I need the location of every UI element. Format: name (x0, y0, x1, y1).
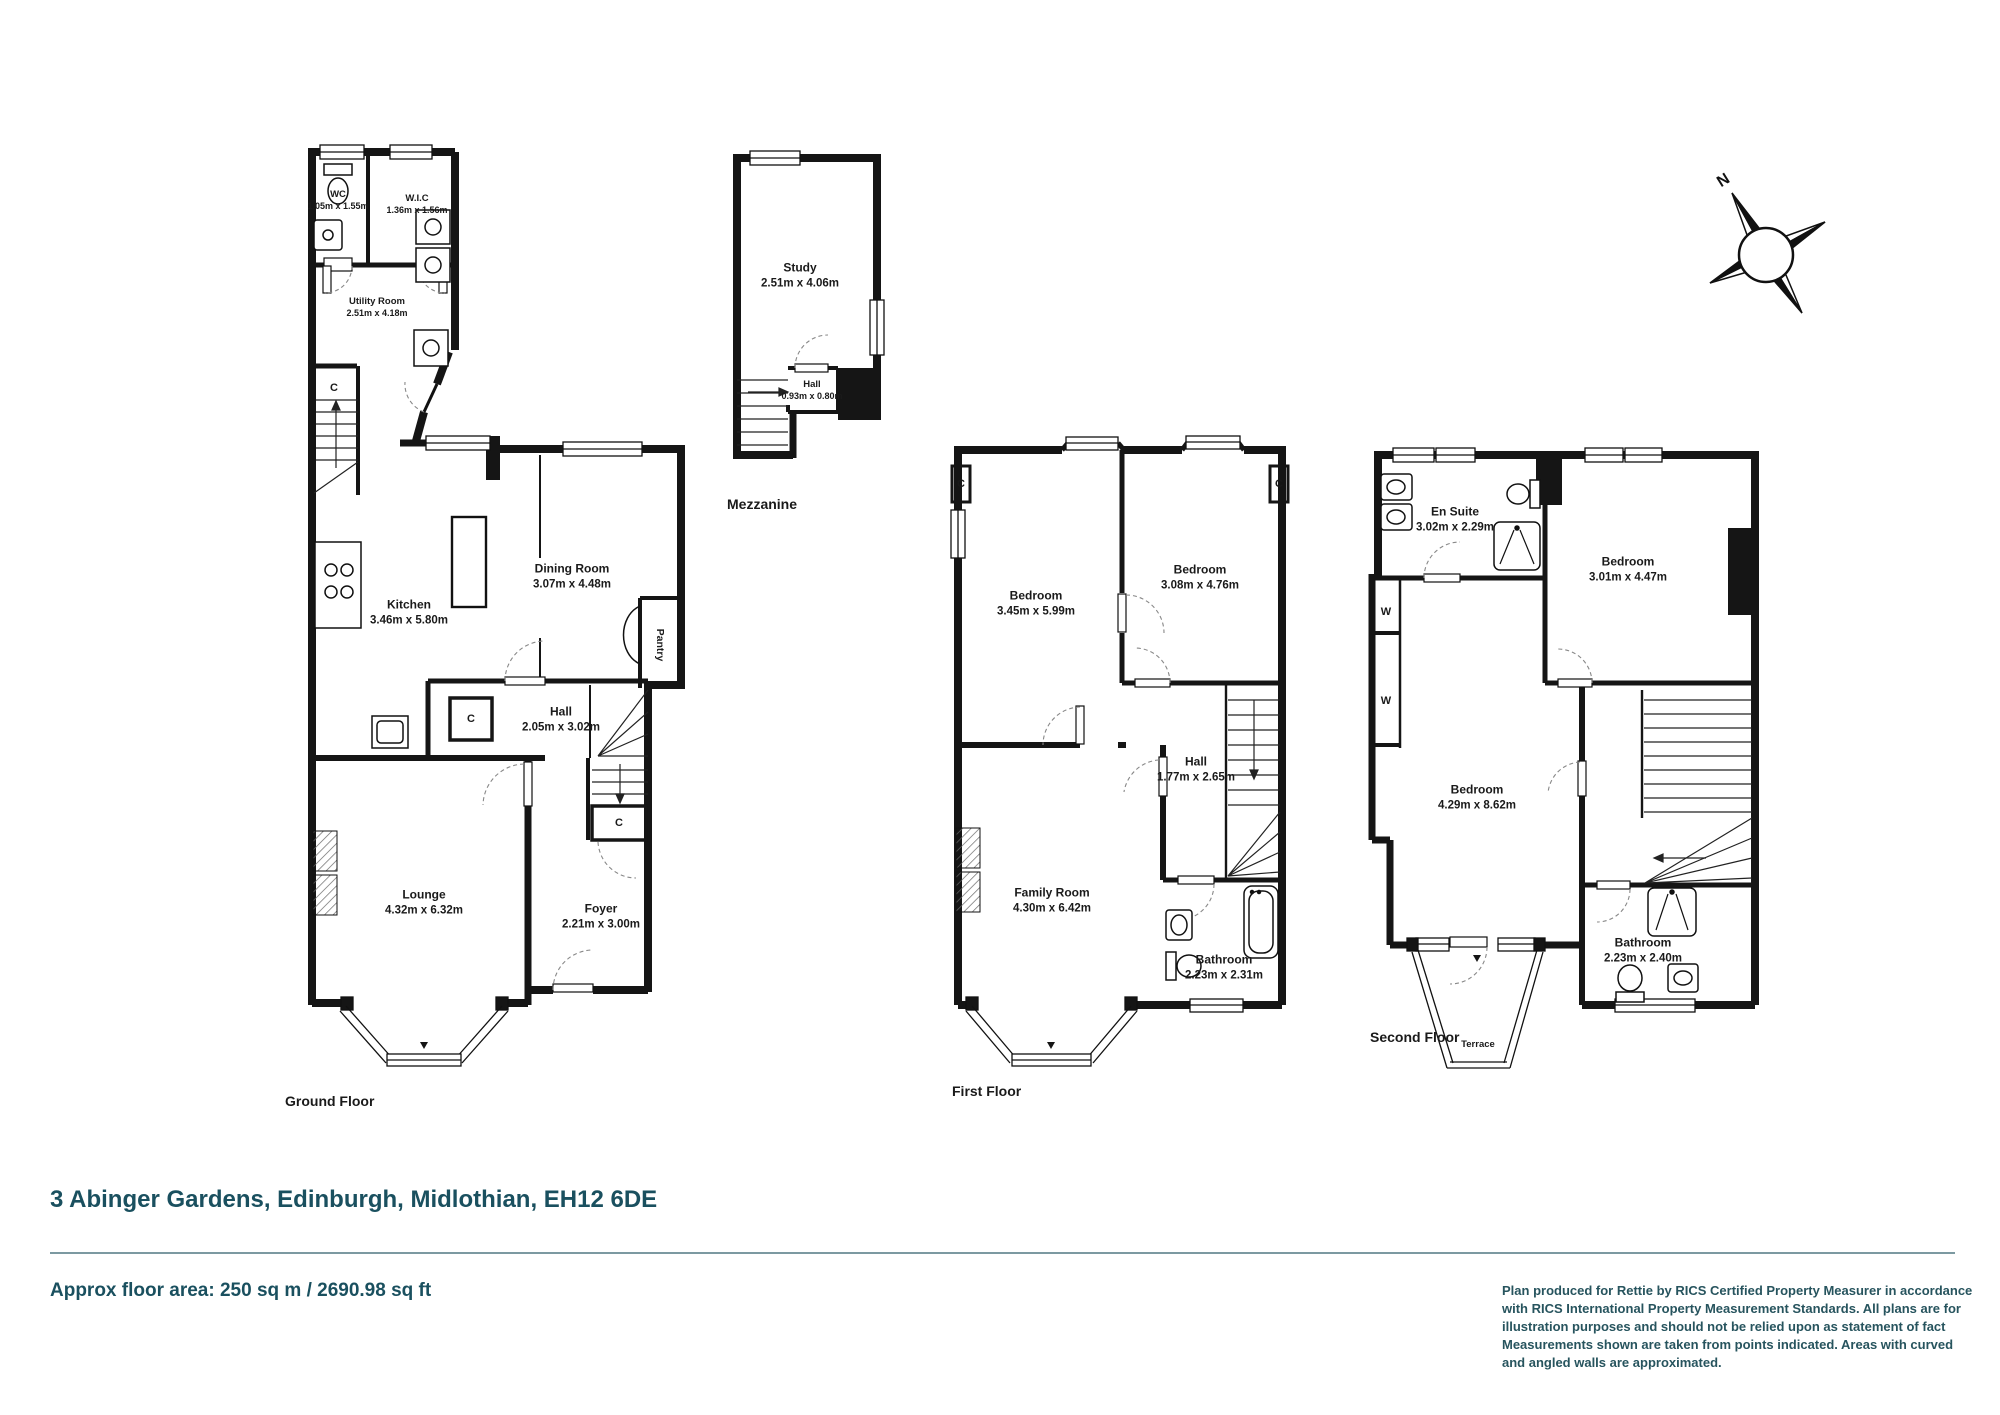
mezzanine-windows (750, 151, 884, 355)
room-name: Bathroom (1196, 953, 1253, 967)
floor-title-first: First Floor (952, 1083, 1021, 1099)
room-name: Bedroom (1174, 563, 1227, 577)
room-name: Lounge (402, 888, 445, 902)
room-label-pantry: Pantry (654, 629, 666, 662)
first-floor-walls (952, 442, 1288, 1005)
ground-floor-fixtures (313, 164, 486, 915)
room-name: Hall (803, 379, 820, 390)
cupboard-label: C (1275, 478, 1283, 490)
footer-divider (50, 1252, 1955, 1254)
room-label-wc: WC 1.05m x 1.55m (307, 189, 368, 213)
room-label-lounge: Lounge 4.32m x 6.32m (385, 888, 463, 919)
floor-title-ground: Ground Floor (285, 1093, 374, 1109)
room-name: Utility Room (349, 296, 405, 307)
room-label-sf-bedroom1: Bedroom 3.01m x 4.47m (1589, 555, 1667, 586)
mezzanine-doors (795, 364, 828, 372)
room-name: Hall (1185, 755, 1207, 769)
room-name: Bedroom (1451, 783, 1504, 797)
room-label-ff-bedroom1: Bedroom 3.45m x 5.99m (997, 589, 1075, 620)
room-dims: 3.02m x 2.29m (1416, 520, 1494, 535)
room-dims: 4.29m x 8.62m (1438, 798, 1516, 813)
cupboard-label: C (957, 478, 965, 490)
room-label-study: Study 2.51m x 4.06m (761, 261, 839, 292)
room-dims: 2.23m x 2.40m (1604, 951, 1682, 966)
room-dims: 2.51m x 4.18m (346, 308, 407, 320)
cupboard-label: C (330, 382, 338, 394)
room-name: Bedroom (1010, 589, 1063, 603)
room-label-terrace: Terrace (1461, 1039, 1495, 1051)
room-label-wic: W.I.C 1.36m x 1.56m (386, 193, 447, 217)
room-label-ff-bathroom: Bathroom 2.23m x 2.31m (1185, 953, 1263, 984)
room-dims: 1.36m x 1.56m (386, 205, 447, 217)
room-label-ff-hall: Hall 1.77m x 2.65m (1157, 755, 1235, 786)
room-name: Dining Room (535, 562, 610, 576)
room-dims: 2.21m x 3.00m (562, 917, 640, 932)
room-label-sf-bedroom2: Bedroom 4.29m x 8.62m (1438, 783, 1516, 814)
room-label-sf-bathroom: Bathroom 2.23m x 2.40m (1604, 936, 1682, 967)
second-floor-doors (1424, 574, 1630, 947)
floor-title-mezzanine: Mezzanine (727, 496, 797, 512)
room-dims: 2.51m x 4.06m (761, 276, 839, 291)
floor-title-second: Second Floor (1370, 1029, 1459, 1045)
room-dims: 3.45m x 5.99m (997, 604, 1075, 619)
disclaimer-text: Plan produced for Rettie by RICS Certifi… (1502, 1282, 1974, 1372)
room-dims: 2.05m x 3.02m (522, 720, 600, 735)
room-label-ensuite: En Suite 3.02m x 2.29m (1416, 505, 1494, 536)
room-name: Hall (550, 705, 572, 719)
first-floor-stairs (1228, 700, 1280, 876)
mezzanine-stairs (737, 380, 788, 445)
cupboard-label: C (467, 713, 475, 725)
floorplan-page: WC 1.05m x 1.55m W.I.C 1.36m x 1.56m Uti… (0, 0, 2000, 1415)
cupboard-label: C (615, 817, 623, 829)
floor-area-text: Approx floor area: 250 sq m / 2690.98 sq… (50, 1280, 431, 1302)
wardrobe-label: W (1381, 695, 1391, 707)
room-label-mezz-hall: Hall 0.93m x 0.80m (781, 379, 842, 403)
room-name: W.I.C (405, 193, 428, 204)
room-name: Terrace (1461, 1039, 1495, 1050)
room-dims: 3.07m x 4.48m (533, 577, 611, 592)
first-floor-doors (1076, 594, 1214, 884)
second-floor-fixtures (1381, 474, 1698, 1002)
room-dims: 1.77m x 2.65m (1157, 770, 1235, 785)
room-label-kitchen: Kitchen 3.46m x 5.80m (370, 598, 448, 629)
room-name: Study (783, 261, 816, 275)
room-name: Bedroom (1602, 555, 1655, 569)
room-label-family-room: Family Room 4.30m x 6.42m (1013, 886, 1091, 917)
room-label-utility: Utility Room 2.51m x 4.18m (346, 296, 407, 320)
room-name: Kitchen (387, 598, 431, 612)
room-name: Family Room (1014, 886, 1089, 900)
room-name: Bathroom (1615, 936, 1672, 950)
second-floor-stairs (1644, 700, 1752, 883)
room-name: Foyer (585, 902, 618, 916)
room-name: En Suite (1431, 505, 1479, 519)
room-label-foyer: Foyer 2.21m x 3.00m (562, 902, 640, 933)
room-label-ff-bedroom2: Bedroom 3.08m x 4.76m (1161, 563, 1239, 594)
room-name: WC (330, 189, 346, 200)
room-dims: 4.32m x 6.32m (385, 903, 463, 918)
room-label-ground-hall: Hall 2.05m x 3.02m (522, 705, 600, 736)
room-label-dining: Dining Room 3.07m x 4.48m (533, 562, 611, 593)
room-dims: 0.93m x 0.80m (781, 391, 842, 403)
compass-icon (1710, 193, 1825, 313)
ground-floor-walls (312, 148, 685, 1005)
property-address: 3 Abinger Gardens, Edinburgh, Midlothian… (50, 1186, 657, 1214)
wardrobe-label: W (1381, 606, 1391, 618)
room-dims: 2.23m x 2.31m (1185, 968, 1263, 983)
room-dims: 1.05m x 1.55m (307, 201, 368, 213)
room-dims: 4.30m x 6.42m (1013, 901, 1091, 916)
room-dims: 3.46m x 5.80m (370, 613, 448, 628)
room-dims: 3.08m x 4.76m (1161, 578, 1239, 593)
mezzanine-walls (733, 154, 877, 458)
room-dims: 3.01m x 4.47m (1589, 570, 1667, 585)
